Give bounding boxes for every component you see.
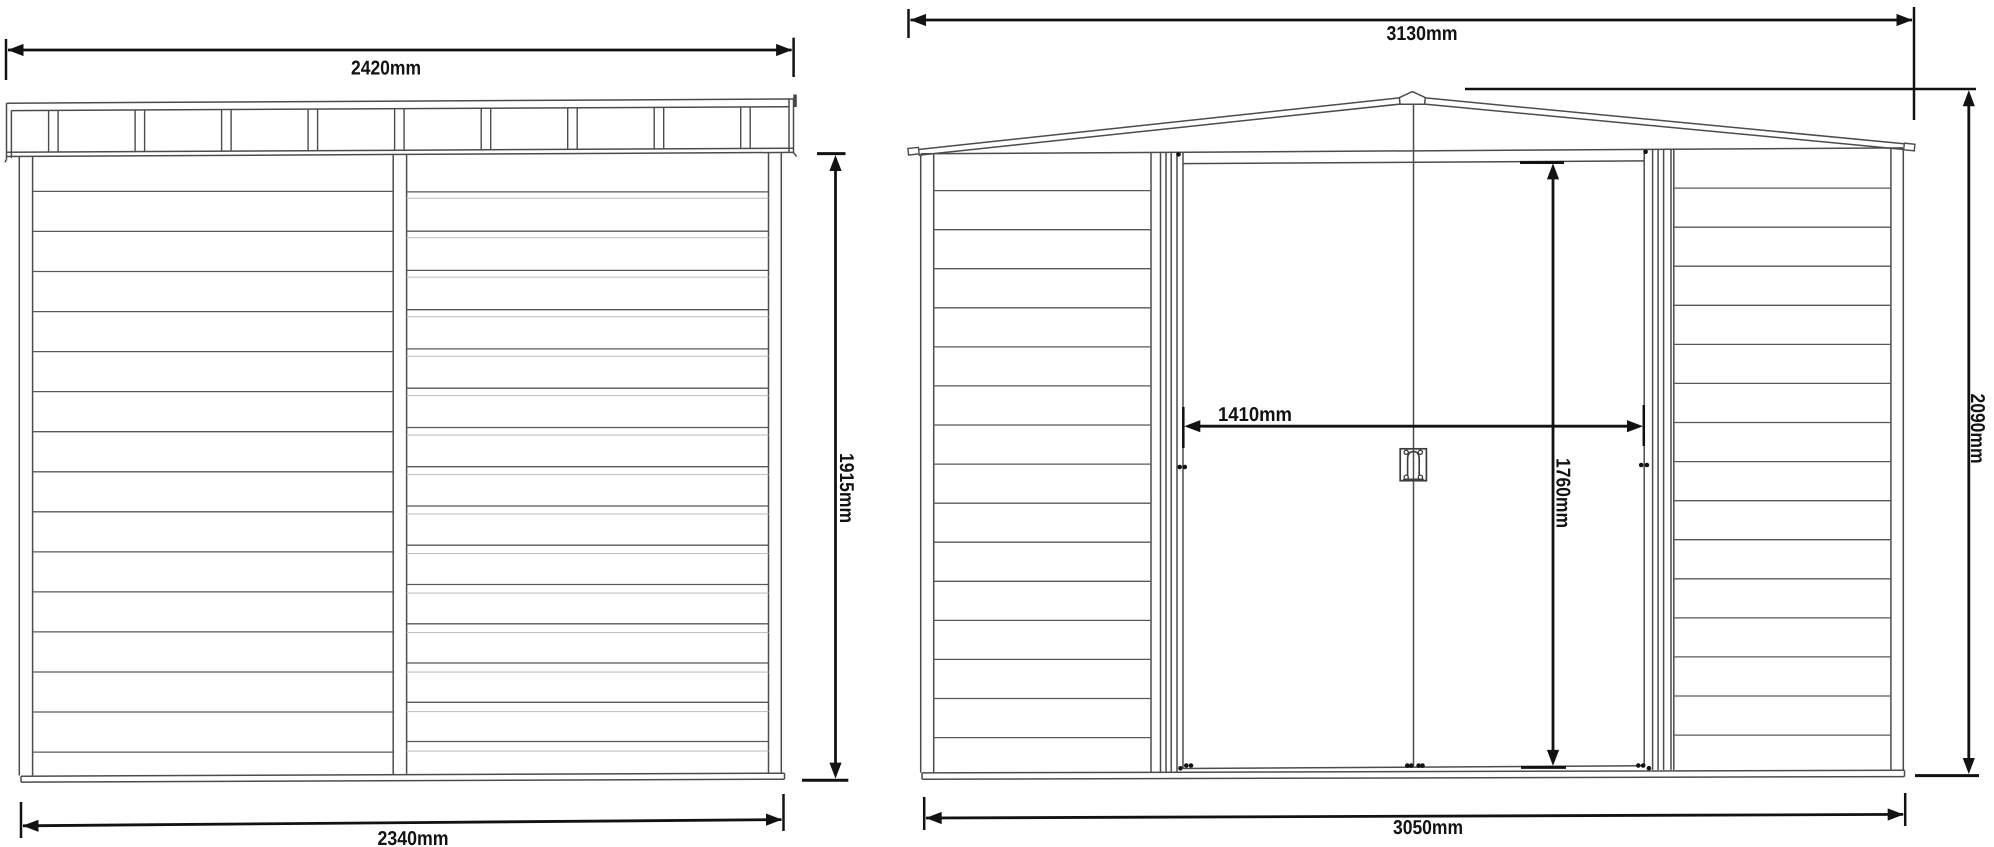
svg-text:2420mm: 2420mm (351, 58, 421, 80)
svg-text:1915mm: 1915mm (835, 453, 857, 523)
svg-text:3050mm: 3050mm (1393, 817, 1463, 839)
svg-text:1760mm: 1760mm (1552, 458, 1574, 528)
svg-text:2340mm: 2340mm (378, 828, 449, 847)
svg-text:3130mm: 3130mm (1387, 23, 1458, 45)
svg-text:2090mm: 2090mm (1966, 394, 1988, 464)
svg-text:1410mm: 1410mm (1218, 404, 1292, 426)
